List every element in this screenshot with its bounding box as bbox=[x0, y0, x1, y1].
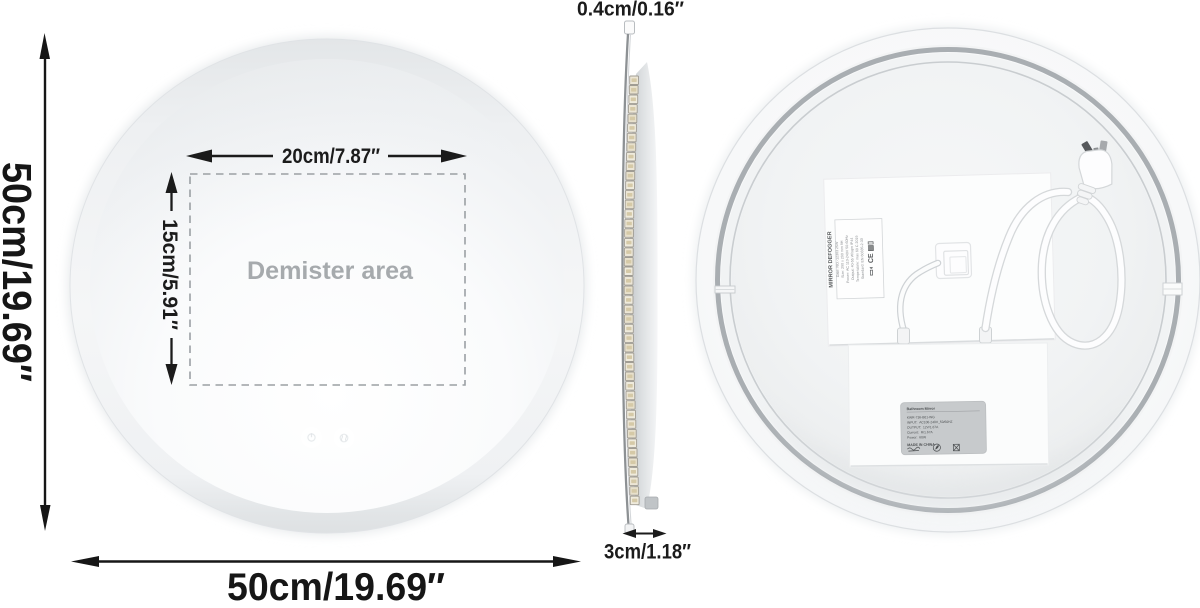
svg-text:15cm/5.91″: 15cm/5.91″ bbox=[158, 219, 181, 330]
svg-text:Bathroom Mirror: Bathroom Mirror bbox=[907, 407, 936, 412]
svg-text:50cm/19.69″: 50cm/19.69″ bbox=[0, 162, 40, 382]
svg-text:MADE IN CHINA: MADE IN CHINA bbox=[907, 443, 935, 447]
svg-text:50cm/19.69″: 50cm/19.69″ bbox=[227, 566, 445, 608]
svg-text:Current: R/1.67A: Current: R/1.67A bbox=[907, 430, 934, 434]
svg-text:3cm/1.18″: 3cm/1.18″ bbox=[604, 540, 691, 564]
svg-text:0.4cm/0.16″: 0.4cm/0.16″ bbox=[577, 0, 684, 21]
svg-text:Demister area: Demister area bbox=[247, 257, 414, 285]
svg-text:KWR-736-B01-WG: KWR-736-B01-WG bbox=[907, 415, 936, 419]
svg-text:Power: 60W: Power: 60W bbox=[907, 435, 927, 439]
svg-text:20cm/7.87″: 20cm/7.87″ bbox=[282, 145, 380, 168]
svg-text:▭◐ CЕ ▤▯: ▭◐ CЕ ▤▯ bbox=[867, 241, 875, 276]
svg-text:INPUT: AC100-240V_50/60HZ: INPUT: AC100-240V_50/60HZ bbox=[907, 420, 953, 425]
svg-text:OUTPUT: 12V/1.67A: OUTPUT: 12V/1.67A bbox=[907, 425, 939, 430]
